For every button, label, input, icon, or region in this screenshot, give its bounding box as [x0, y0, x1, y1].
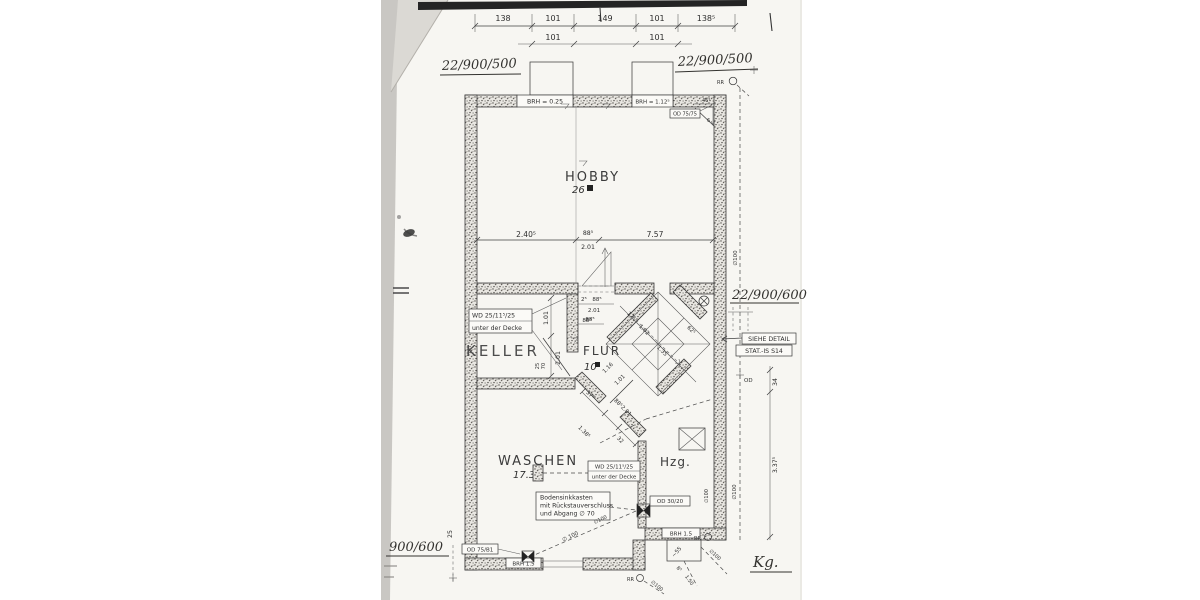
- pipe-dia-right-2: ∅100: [732, 484, 738, 500]
- od-bottom-label: OD 75/B1: [467, 548, 493, 554]
- rr-br-label: RR: [694, 536, 701, 542]
- keller-dim-25: 25: [535, 363, 541, 369]
- duct-pier: [533, 465, 543, 481]
- wd2-line2: unter der Decke: [592, 475, 637, 481]
- siehe-detail-label: SIEHE DETAIL: [748, 336, 790, 343]
- wall-mid-a1: [477, 283, 578, 294]
- wd1-line2: unter der Decke: [472, 325, 522, 332]
- od-corner-label: OD 75/75: [673, 112, 697, 118]
- stat-label: STAT.-IS S14: [745, 348, 783, 355]
- dim-101a: 101: [545, 14, 560, 23]
- room-label-hobby: HOBBY: [565, 170, 620, 185]
- rr-bl-label: RR: [627, 577, 634, 583]
- dim-101d: 101: [649, 33, 664, 42]
- door-top-a: 2⁵: [581, 296, 587, 303]
- right-dim-3375: 3.37⁵: [772, 456, 779, 473]
- note-bottom-left: 900/600: [389, 540, 443, 555]
- room-label-keller: KELLER: [466, 342, 540, 360]
- keller-dim-70: 70: [541, 363, 547, 369]
- wd1-line1: WD 25/11⁵/25: [472, 313, 515, 320]
- wall-mid-a2: [615, 283, 654, 294]
- hobby-door-h: 2.01: [581, 244, 595, 251]
- sink-line2: mit Rückstauverschluss: [540, 503, 613, 510]
- wall-top-2: [573, 95, 632, 107]
- note-right: 22/900/600: [731, 288, 807, 303]
- wall-hzg-west: [638, 441, 646, 528]
- hobby-dim-right: 7.57: [647, 230, 664, 239]
- hobby-area: 26: [572, 185, 585, 196]
- dim-25-bl: 25: [447, 530, 454, 538]
- sink-line1: Bodensinkkasten: [540, 495, 593, 502]
- dim-101c: 101: [545, 33, 560, 42]
- corner-dim-b: 6: [707, 118, 710, 124]
- right-dim-34: 34: [772, 378, 779, 386]
- note-top-left: 22/900/500: [441, 56, 517, 74]
- wall-keller-flur: [567, 294, 578, 352]
- hobby-door-w: 88⁵: [583, 230, 594, 237]
- sink-line3: und Abgang ∅ 70: [540, 511, 595, 518]
- flur-door-dim: 88⁵: [582, 317, 591, 324]
- door-top-c: 2.01: [588, 308, 600, 314]
- hobby-dim-left: 2.40⁵: [516, 230, 536, 239]
- flur-area: 10: [584, 362, 597, 373]
- pipe-dia-right-1: ∅100: [733, 250, 739, 266]
- rr-top-label: RR: [717, 80, 724, 86]
- brh-left-label: BRH = 0.25: [527, 99, 563, 106]
- dim-101b: 101: [649, 14, 664, 23]
- room-label-flur: FLUR: [583, 344, 621, 358]
- room-label-hzg: Hzg.: [660, 455, 691, 469]
- waschen-area: 17.3: [513, 470, 535, 481]
- wall-keller-waschen: [477, 378, 575, 389]
- dim-149: 149: [597, 14, 612, 23]
- od-drain-label: OD 30/20: [657, 499, 684, 505]
- dim-1385: 138⁵: [697, 14, 715, 23]
- paper-speck: [397, 215, 401, 219]
- note-sheet-kg: Kg.: [752, 553, 779, 571]
- keller-dim-101: 1.01: [543, 311, 550, 325]
- scanned-floor-plan-page: 138 101 149 101 138⁵ 101 101 22/900/500 …: [0, 0, 1200, 600]
- door-top-b: 88⁵: [592, 296, 601, 303]
- wall-right: [714, 95, 726, 540]
- area-square-hobby: [587, 185, 593, 191]
- brh-hzg-label: BRH 1.5: [670, 532, 693, 538]
- floor-plan-drawing: 138 101 149 101 138⁵ 101 101 22/900/500 …: [0, 0, 1200, 600]
- od-right-label: OD: [744, 378, 753, 384]
- wd2-line1: WD 25/11⁵/25: [595, 464, 634, 471]
- hzg-pipe-label: ∅100: [704, 489, 710, 503]
- corner-dim-a: 46⁵: [702, 98, 710, 104]
- brh-bottom-label: BRH 1.5: [512, 562, 535, 568]
- brh-right-label: BRH = 1.12⁵: [635, 99, 669, 106]
- dim-138: 138: [495, 14, 510, 23]
- area-square-flur: [595, 362, 600, 367]
- wall-connector: [633, 540, 645, 570]
